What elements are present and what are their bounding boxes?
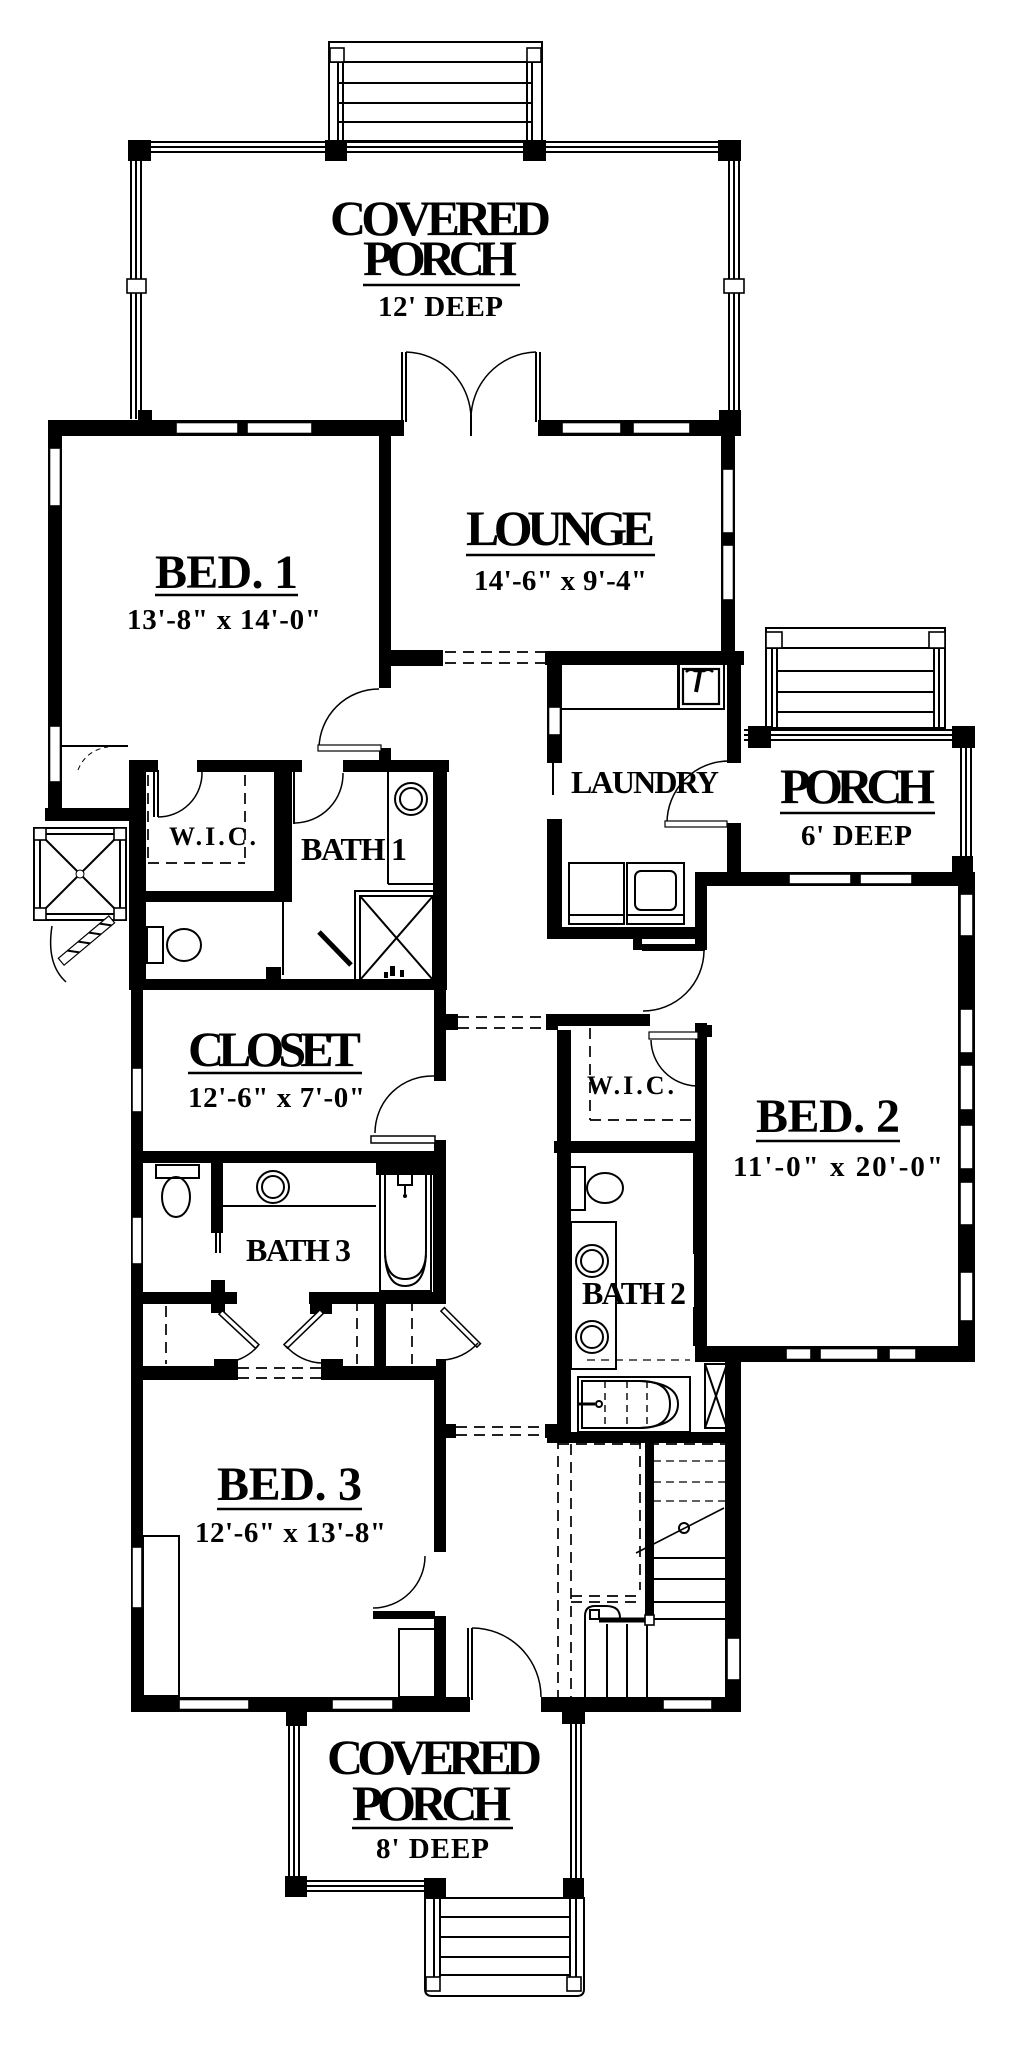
svg-text:BED. 2: BED. 2	[756, 1090, 900, 1143]
svg-text:BED. 3: BED. 3	[217, 1458, 362, 1511]
svg-text:W.I.C.: W.I.C.	[587, 1071, 674, 1100]
svg-text:BATH 2: BATH 2	[582, 1275, 686, 1311]
svg-text:14'-6" x 9'-4": 14'-6" x 9'-4"	[474, 565, 647, 597]
svg-text:W.I.C.: W.I.C.	[169, 822, 256, 851]
svg-text:13'-8" x 14'-0": 13'-8" x 14'-0"	[127, 604, 321, 636]
svg-text:12'-6" x 13'-8": 12'-6" x 13'-8"	[195, 1517, 386, 1549]
svg-text:BATH 3: BATH 3	[246, 1232, 351, 1268]
svg-text:12' DEEP: 12' DEEP	[378, 291, 503, 323]
svg-text:BATH 1: BATH 1	[301, 831, 407, 867]
svg-text:PORCH: PORCH	[363, 230, 517, 286]
svg-text:8' DEEP: 8' DEEP	[376, 1833, 489, 1865]
svg-text:CLOSET: CLOSET	[188, 1021, 361, 1077]
svg-text:11'-0" x 20'-0": 11'-0" x 20'-0"	[733, 1151, 943, 1183]
svg-text:PORCH: PORCH	[352, 1775, 511, 1831]
svg-text:PORCH: PORCH	[780, 758, 935, 814]
svg-text:LOUNGE: LOUNGE	[466, 500, 655, 556]
svg-text:BED. 1: BED. 1	[155, 546, 298, 599]
svg-text:12'-6" x 7'-0": 12'-6" x 7'-0"	[188, 1082, 365, 1114]
svg-text:6' DEEP: 6' DEEP	[801, 820, 912, 852]
